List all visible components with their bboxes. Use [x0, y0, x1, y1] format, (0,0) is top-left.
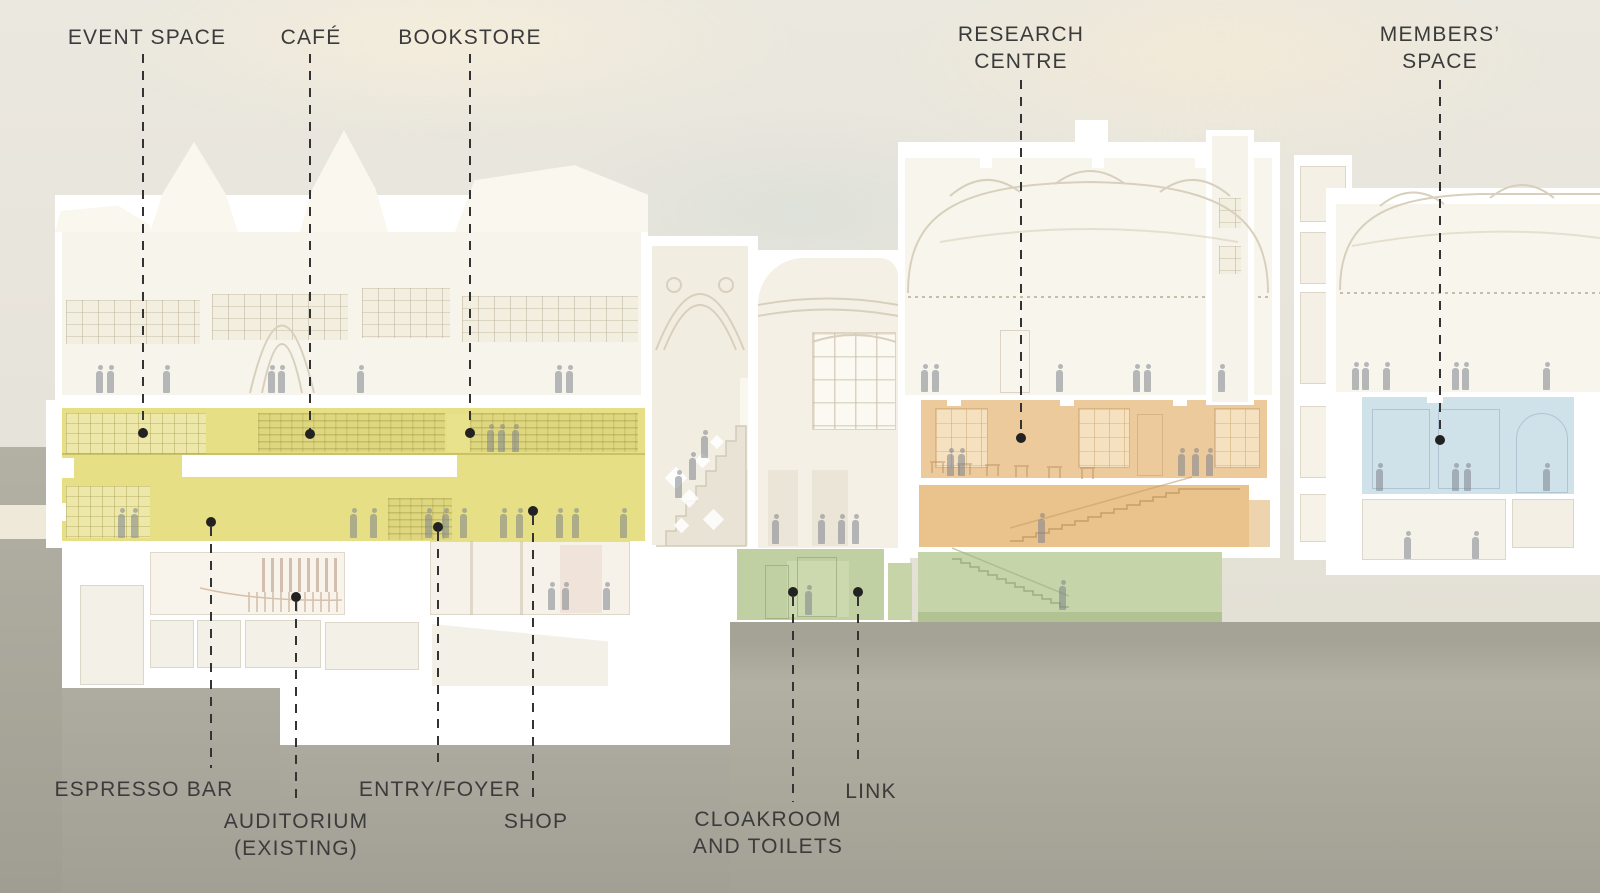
person-figure [1542, 463, 1551, 491]
research-window [1078, 408, 1130, 468]
cellar-room [150, 620, 194, 668]
label-cloakroom-toilets: CLOAKROOM AND TOILETS [693, 806, 843, 860]
person-figure [804, 585, 813, 616]
clerestory-windows [462, 296, 638, 342]
person-figure [837, 514, 846, 545]
members-cornice [1340, 292, 1600, 294]
person-figure [1177, 448, 1186, 476]
leader-line-cloakroom [792, 597, 795, 802]
person-figure [1191, 448, 1200, 476]
stair-hall-window [740, 378, 748, 470]
link-floor-strip [918, 612, 1222, 622]
person-figure [851, 514, 860, 545]
tower-window [1219, 198, 1241, 228]
cellar-room [245, 620, 321, 668]
roof-pavilion [145, 140, 243, 232]
leader-line-bookstore [469, 54, 472, 430]
person-figure [1143, 364, 1152, 392]
person-figure [1451, 362, 1460, 390]
leader-line-members-space [1439, 80, 1442, 436]
auditorium-seating-wall [262, 558, 338, 592]
shop-column [470, 541, 473, 615]
event-space-windows [66, 413, 206, 454]
section-diagram: EVENT SPACE CAFÉ BOOKSTORE RESEARCH CENT… [0, 0, 1600, 893]
rotunda-window [812, 332, 896, 430]
members-lower-room [1362, 499, 1506, 560]
person-figure [700, 430, 709, 458]
label-shop: SHOP [504, 808, 568, 835]
person-figure [486, 424, 495, 452]
facade-notch [48, 503, 66, 521]
stair-hall-interior [652, 246, 748, 546]
basement-frame-deep [280, 688, 730, 745]
clerestory-windows [66, 300, 200, 344]
shop-column [520, 541, 523, 615]
person-figure [499, 508, 508, 539]
leader-dot-entry-foyer [433, 522, 443, 532]
leader-line-auditorium [295, 602, 298, 804]
person-figure [565, 365, 574, 393]
facade-notch [48, 458, 74, 478]
leader-line-shop [532, 516, 535, 803]
parapet-notch [980, 158, 992, 168]
label-members-space: MEMBERS’ SPACE [1380, 21, 1500, 75]
orange-notch [947, 400, 961, 406]
clerestory-windows [362, 288, 450, 338]
cloakroom-door [765, 565, 789, 619]
person-figure [1403, 531, 1412, 559]
person-figure [547, 582, 556, 610]
research-hall-door [1000, 330, 1030, 393]
person-figure [931, 364, 940, 392]
person-figure [356, 365, 365, 393]
leader-dot-cafe [305, 429, 315, 439]
person-figure [571, 508, 580, 539]
person-figure [162, 365, 171, 393]
leader-dot-event-space [138, 428, 148, 438]
zone-research-centre-lower [919, 485, 1249, 547]
table-figure [1047, 466, 1062, 480]
person-figure [771, 514, 780, 545]
person-figure [602, 582, 611, 610]
person-figure [267, 365, 276, 393]
person-figure [511, 424, 520, 452]
leader-line-link [857, 597, 860, 766]
person-figure [459, 508, 468, 539]
mezzanine-slab [182, 455, 457, 477]
person-figure [554, 365, 563, 393]
research-door [1137, 414, 1163, 476]
person-figure [1037, 513, 1046, 544]
orange-notch [1173, 400, 1187, 406]
cafe-bookshelf-wall [258, 413, 445, 452]
clerestory-windows [212, 294, 348, 340]
leader-dot-cloakroom [788, 587, 798, 597]
person-figure [95, 365, 104, 393]
leader-line-research-centre [1020, 80, 1023, 434]
leader-line-cafe [309, 54, 312, 431]
leader-dot-link [853, 587, 863, 597]
zone-research-centre-lower-nub [1249, 500, 1270, 547]
table-figure [930, 461, 945, 475]
label-cafe: CAFÉ [281, 24, 342, 51]
zone-link-corridor [888, 563, 912, 620]
label-event-space: EVENT SPACE [68, 24, 226, 51]
person-figure [1463, 463, 1472, 491]
person-figure [497, 424, 506, 452]
person-figure [674, 470, 683, 498]
person-figure [515, 508, 524, 539]
person-figure [946, 448, 955, 476]
person-figure [555, 508, 564, 539]
person-figure [1055, 364, 1064, 392]
person-figure [1361, 362, 1370, 390]
person-figure [424, 508, 433, 539]
leader-dot-research-centre [1016, 433, 1026, 443]
person-figure [441, 508, 450, 539]
person-figure [1205, 448, 1214, 476]
orange-notch [1060, 400, 1074, 406]
research-roof-chimney [1075, 120, 1108, 145]
leader-dot-auditorium [291, 592, 301, 602]
parapet-notch [1092, 158, 1104, 168]
label-link: LINK [845, 778, 897, 805]
leader-dot-members-space [1435, 435, 1445, 445]
person-figure [106, 365, 115, 393]
table-figure [1014, 465, 1029, 479]
person-figure [1542, 362, 1551, 390]
person-figure [1351, 362, 1360, 390]
person-figure [957, 448, 966, 476]
person-figure [1471, 531, 1480, 559]
leader-line-event-space [142, 54, 145, 430]
leader-line-espresso-bar [210, 527, 213, 768]
cellar-room [325, 622, 419, 670]
person-figure [369, 508, 378, 539]
label-espresso-bar: ESPRESSO BAR [55, 776, 234, 803]
cellar-room [197, 620, 241, 668]
leader-dot-shop [528, 506, 538, 516]
person-figure [1375, 463, 1384, 491]
person-figure [1132, 364, 1141, 392]
cellar-room [80, 585, 144, 685]
person-figure [117, 508, 126, 539]
person-figure [561, 582, 570, 610]
person-figure [817, 514, 826, 545]
person-figure [920, 364, 929, 392]
person-figure [1461, 362, 1470, 390]
leader-line-entry-foyer [437, 532, 440, 769]
person-figure [1217, 364, 1226, 392]
person-figure [1058, 580, 1067, 611]
cloakroom-door [797, 557, 837, 617]
research-window [1214, 408, 1260, 468]
person-figure [1382, 362, 1391, 390]
leader-dot-espresso-bar [206, 517, 216, 527]
bookstore-shelf-wall [470, 413, 638, 452]
person-figure [688, 452, 697, 480]
tower-window [1219, 246, 1241, 274]
person-figure [619, 508, 628, 539]
person-figure [130, 508, 139, 539]
leader-dot-bookstore [465, 428, 475, 438]
members-lower-room-right [1512, 499, 1574, 548]
table-figure [1080, 467, 1095, 481]
label-bookstore: BOOKSTORE [398, 24, 541, 51]
label-entry-foyer: ENTRY/FOYER [359, 776, 521, 803]
person-figure [349, 508, 358, 539]
person-figure [1451, 463, 1460, 491]
label-auditorium-existing: AUDITORIUM (EXISTING) [224, 808, 369, 862]
label-research-centre: RESEARCH CENTRE [958, 21, 1084, 75]
table-figure [985, 464, 1000, 478]
person-figure [277, 365, 286, 393]
